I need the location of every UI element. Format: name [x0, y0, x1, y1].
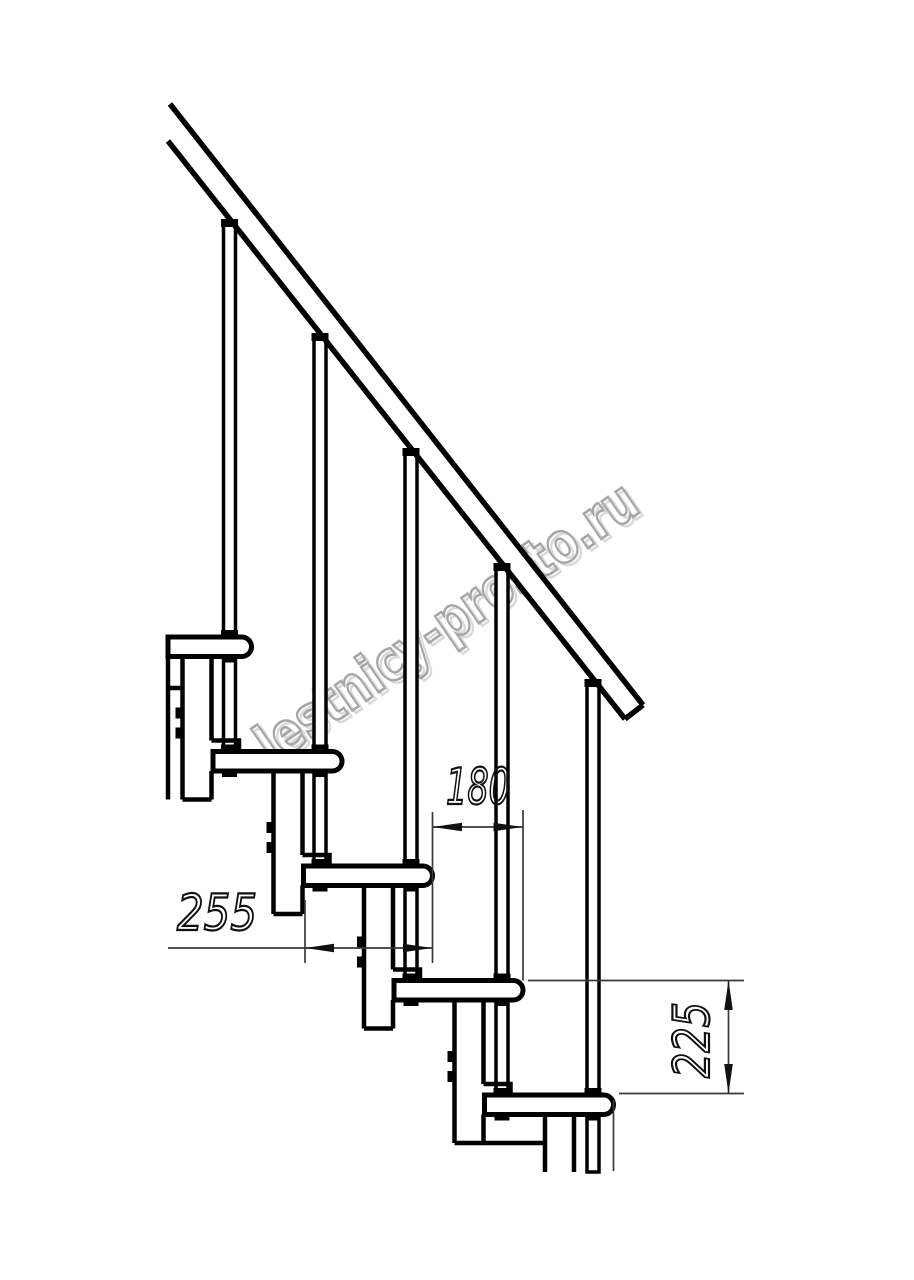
staircase-technical-drawing: lestnicy-prosto.ru lestnicy-prosto.ru	[0, 0, 914, 1280]
arrow-up-icon	[724, 981, 733, 1011]
tread-collar-icon	[494, 974, 511, 981]
bolt-icon	[357, 957, 364, 968]
tread-2	[213, 752, 342, 772]
under-tread-nub-icon	[586, 1115, 601, 1121]
tread-collar-icon	[494, 1088, 511, 1095]
rail-collar-icon	[494, 563, 511, 571]
under-tread-nub-icon	[222, 771, 237, 777]
bolt-icon	[448, 1051, 455, 1062]
tread-collar-icon	[585, 1088, 602, 1095]
tread-1	[168, 637, 252, 657]
under-tread-nub-icon	[404, 1000, 419, 1006]
bolt-icon	[448, 1071, 455, 1082]
tread-4	[394, 981, 523, 1001]
dimension-step-rise: 225	[528, 981, 744, 1172]
dimension-label-225: 225	[663, 1002, 721, 1078]
tread-collar-icon	[312, 745, 329, 752]
tread-collar-icon	[221, 630, 238, 637]
baluster-1	[224, 225, 236, 752]
bolt-icon	[267, 842, 274, 853]
dimension-label-180: 180	[446, 758, 510, 816]
arrow-left-icon	[433, 823, 463, 831]
arrow-down-icon	[724, 1064, 733, 1094]
under-tread-nub-icon	[495, 1000, 510, 1006]
under-tread-nub-icon	[313, 886, 328, 892]
tread-5	[485, 1095, 614, 1115]
rail-collar-icon	[221, 219, 238, 227]
tread-3	[304, 866, 433, 886]
tread-collar-icon	[312, 859, 329, 866]
under-tread-nub-icon	[222, 657, 237, 663]
tread-collar-icon	[403, 974, 420, 981]
rail-collar-icon	[312, 333, 329, 341]
baluster-2	[314, 339, 326, 866]
bolt-icon	[267, 822, 274, 833]
rail-collar-icon	[585, 679, 602, 687]
support-column-5	[545, 1115, 574, 1173]
bolt-icon	[357, 937, 364, 948]
baluster-3	[405, 454, 417, 981]
arrow-left-icon	[305, 944, 334, 952]
under-tread-nub-icon	[404, 886, 419, 892]
under-tread-nub-icon	[495, 1115, 510, 1121]
staircase-drawing-page: lestnicy-prosto.ru lestnicy-prosto.ru	[0, 0, 914, 1280]
under-tread-nub-icon	[313, 771, 328, 777]
dimension-label-255: 255	[177, 884, 257, 942]
tread-collar-icon	[221, 745, 238, 752]
bolt-icon	[176, 728, 183, 739]
rail-collar-icon	[403, 448, 420, 456]
baluster-4	[496, 569, 508, 1095]
bolt-icon	[176, 708, 183, 719]
tread-collar-icon	[403, 859, 420, 866]
